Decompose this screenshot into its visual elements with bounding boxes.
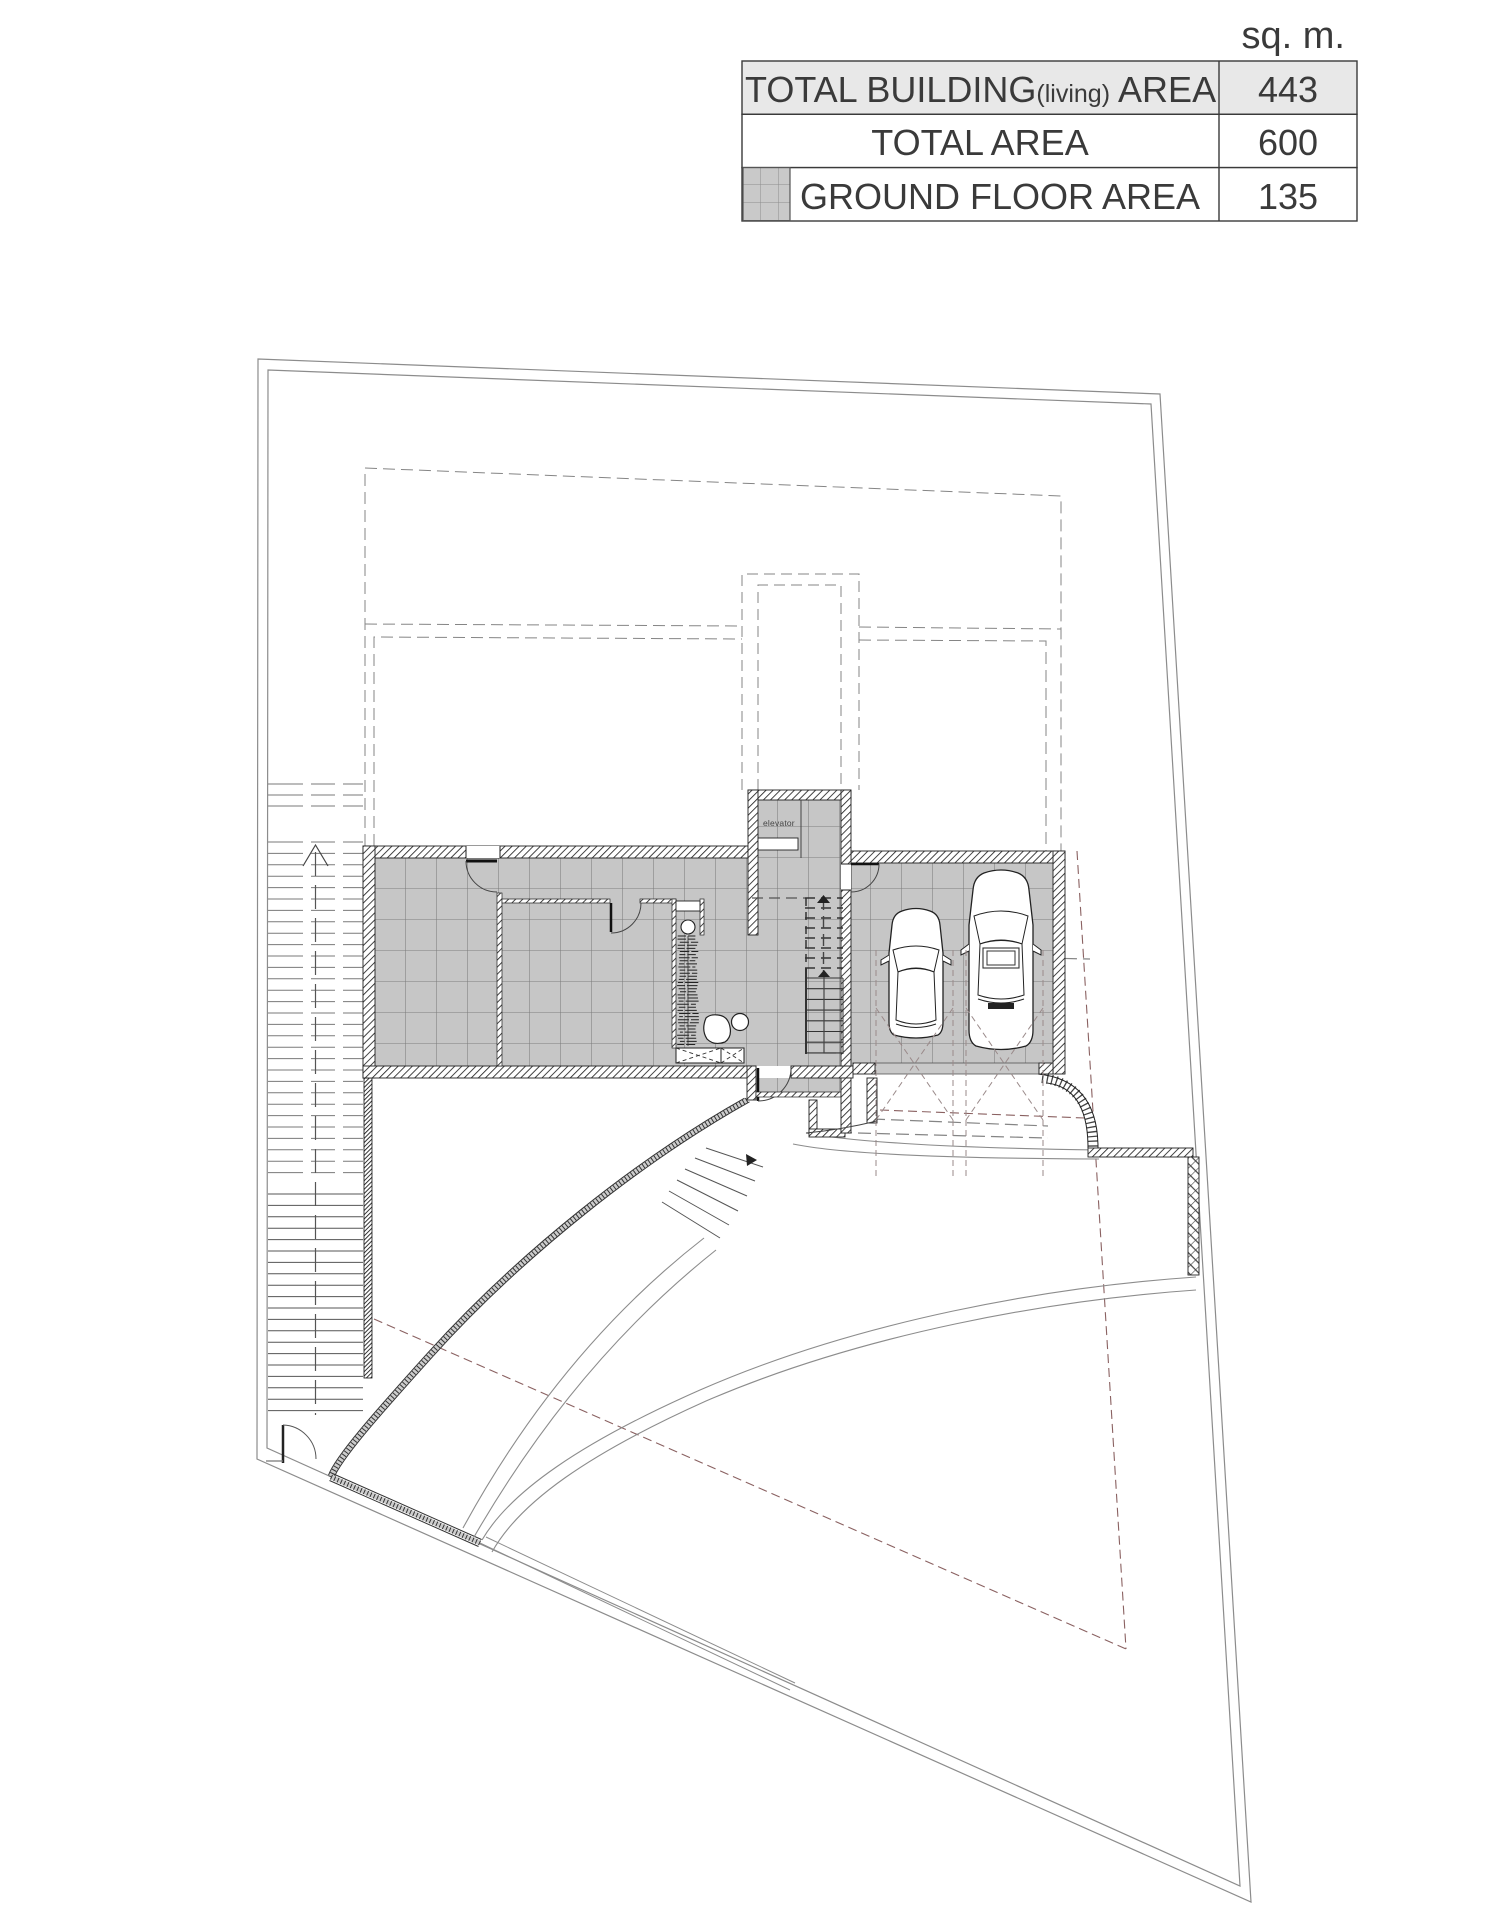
svg-text:135: 135 (1258, 176, 1318, 217)
svg-text:600: 600 (1258, 122, 1318, 163)
svg-text:TOTAL BUILDING(living) AREA: TOTAL BUILDING(living) AREA (745, 69, 1216, 110)
svg-text:sq. m.: sq. m. (1242, 15, 1345, 57)
svg-text:elevator: elevator (763, 818, 795, 828)
svg-text:TOTAL AREA: TOTAL AREA (871, 122, 1088, 163)
svg-text:443: 443 (1258, 69, 1318, 110)
svg-text:GROUND FLOOR AREA: GROUND FLOOR AREA (800, 176, 1200, 217)
